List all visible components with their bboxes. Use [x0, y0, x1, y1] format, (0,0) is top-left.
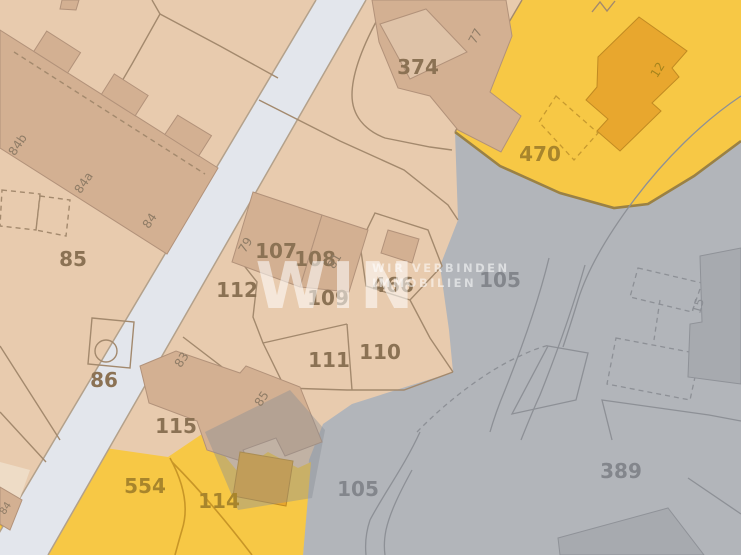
- parcel-label-105-bottom: 105: [337, 477, 379, 501]
- parcel-label-554: 554: [124, 474, 166, 498]
- parcel-label-389: 389: [600, 459, 642, 483]
- parcel-label-110: 110: [359, 340, 401, 364]
- parcel-label-470: 470: [519, 142, 561, 166]
- parcel-label-114: 114: [198, 489, 240, 513]
- watermark-tagline-2: IMMOBILIEN: [372, 276, 476, 290]
- parcel-label-86: 86: [90, 368, 118, 392]
- building-top-edge: [60, 0, 79, 10]
- map-canvas: 374 470 85 86 112 107 108 109 466 110 11…: [0, 0, 741, 555]
- parcel-label-112: 112: [216, 278, 258, 302]
- parcel-label-85: 85: [59, 247, 87, 271]
- parcel-label-111: 111: [308, 348, 350, 372]
- parcel-label-115: 115: [155, 414, 197, 438]
- cadastral-map: 374 470 85 86 112 107 108 109 466 110 11…: [0, 0, 741, 555]
- watermark-tagline-1: WIR VERBINDEN: [372, 261, 510, 275]
- parcel-label-374: 374: [397, 55, 439, 79]
